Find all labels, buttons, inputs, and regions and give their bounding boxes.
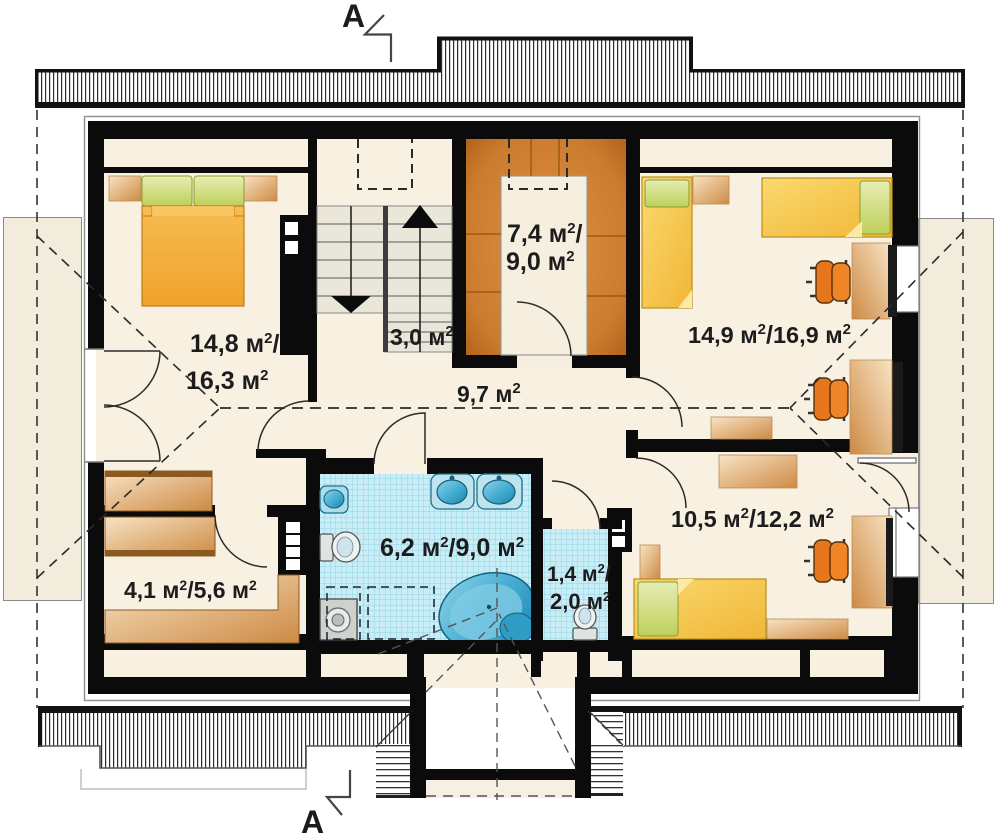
- svg-text:9,0 м2: 9,0 м2: [506, 248, 575, 276]
- svg-text:2,0 м2: 2,0 м2: [550, 589, 610, 614]
- svg-text:3,0 м2: 3,0 м2: [390, 323, 454, 350]
- svg-text:4,1 м2/5,6 м2: 4,1 м2/5,6 м2: [124, 577, 257, 603]
- svg-text:A: A: [301, 804, 324, 833]
- svg-text:14,9 м2/16,9 м2: 14,9 м2/16,9 м2: [688, 321, 851, 349]
- svg-text:9,7 м2: 9,7 м2: [457, 380, 521, 407]
- svg-text:10,5 м2/12,2 м2: 10,5 м2/12,2 м2: [671, 505, 834, 533]
- svg-text:6,2 м2/9,0 м2: 6,2 м2/9,0 м2: [380, 534, 524, 562]
- svg-text:16,3 м2: 16,3 м2: [186, 367, 268, 395]
- svg-text:A: A: [342, 0, 365, 34]
